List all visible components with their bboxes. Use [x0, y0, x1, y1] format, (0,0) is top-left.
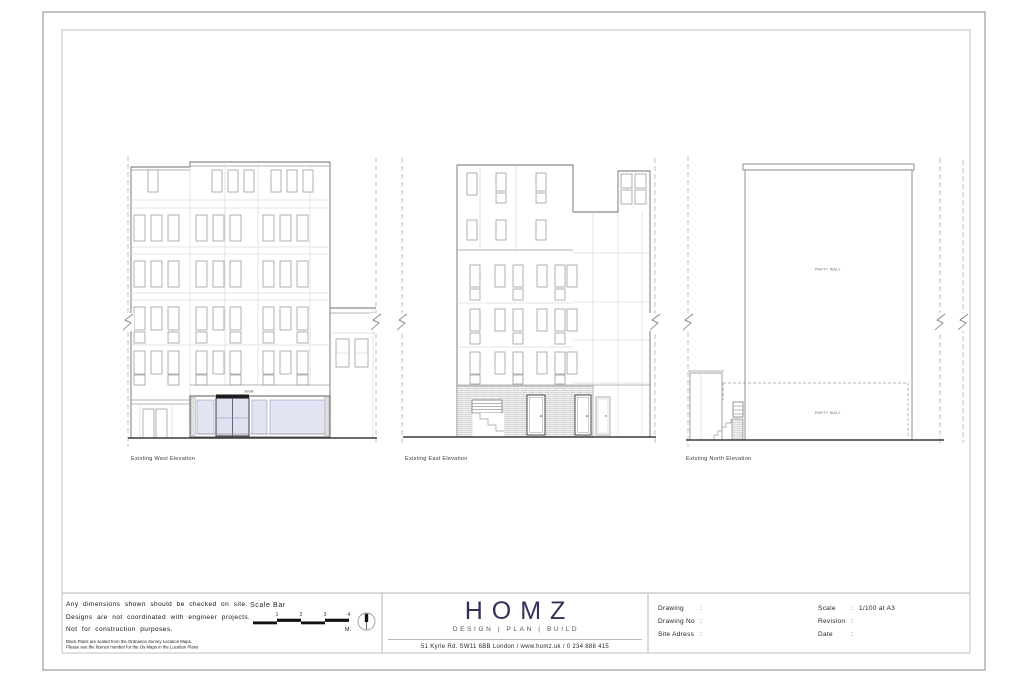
- info-row-date: Date:: [818, 628, 895, 641]
- info-colon: :: [700, 602, 706, 615]
- info-colon: :: [700, 615, 706, 628]
- north-elevation-label: Existing North Elevation: [686, 456, 751, 462]
- brand-divider: [388, 639, 642, 640]
- north-elevation-drawing: PARTY WALL PARTY WALL Existing North Ele…: [686, 156, 963, 462]
- info-label-scale: Scale: [818, 602, 851, 615]
- info-colon: :: [700, 628, 706, 641]
- note-small-1: Block Plans are scaled from the Ordnance…: [66, 640, 354, 646]
- note-line-3: Not for construction purposes.: [66, 624, 366, 637]
- info-value-scale: 1/100 at A3: [859, 602, 895, 615]
- info-colon: :: [851, 615, 857, 628]
- brand-address: 51 Kyrle Rd. SW11 6BB London / www.homz.…: [383, 644, 647, 650]
- info-label-drawing: Drawing: [658, 602, 700, 615]
- drawing-info-block: Drawing: Drawing No: Site Adress: Scale:…: [648, 593, 970, 653]
- drawing-sheet: tenant: [0, 0, 1024, 683]
- brand-tagline: DESIGN | PLAN | BUILD: [383, 626, 647, 633]
- info-colon: :: [851, 628, 857, 641]
- shopfront-fascia-label: tenant: [245, 390, 254, 394]
- info-column-left: Drawing: Drawing No: Site Adress:: [658, 602, 708, 641]
- info-label-drawing-no: Drawing No: [658, 615, 700, 628]
- note-line-2: Designs are not coordinated with enginee…: [66, 612, 366, 625]
- note-line-1: Any dimensions shown should be checked o…: [66, 599, 366, 612]
- party-wall-label-upper: PARTY WALL: [815, 268, 841, 272]
- info-label-date: Date: [818, 628, 851, 641]
- info-colon: :: [851, 602, 857, 615]
- east-elevation-label: Existing East Elevation: [405, 456, 468, 462]
- east-elevation-drawing: Existing East Elevation: [403, 158, 656, 462]
- info-row-drawing-no: Drawing No:: [658, 615, 708, 628]
- west-elevation-label: Existing West Elevation: [131, 456, 195, 462]
- info-label-site-address: Site Adress: [658, 628, 700, 641]
- elevations-canvas: tenant: [0, 0, 1024, 683]
- note-small-2: Please see the licence number for the Os…: [66, 645, 354, 651]
- info-label-revision: Revision: [818, 615, 851, 628]
- brand-logo-text: HOMZ: [383, 599, 647, 624]
- brand-block: HOMZ DESIGN | PLAN | BUILD 51 Kyrle Rd. …: [383, 593, 647, 653]
- notes-small-print: Block Plans are scaled from the Ordnance…: [66, 640, 354, 651]
- info-row-site-address: Site Adress:: [658, 628, 708, 641]
- west-elevation-drawing: tenant: [128, 156, 402, 462]
- info-row-revision: Revision:: [818, 615, 895, 628]
- info-column-right: Scale:1/100 at A3 Revision: Date:: [818, 602, 895, 641]
- info-row-drawing: Drawing:: [658, 602, 708, 615]
- party-wall-label-lower: PARTY WALL: [815, 411, 841, 415]
- notes-block: Any dimensions shown should be checked o…: [66, 599, 366, 655]
- info-row-scale: Scale:1/100 at A3: [818, 602, 895, 615]
